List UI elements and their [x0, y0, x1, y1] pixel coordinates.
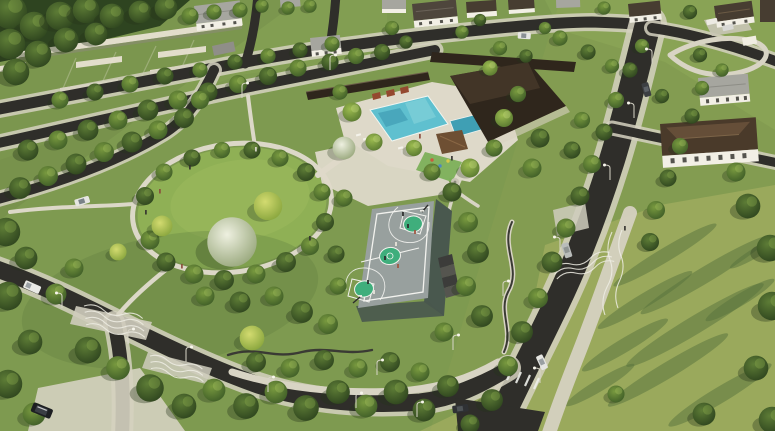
car-white — [518, 32, 531, 39]
pedestrian — [309, 236, 311, 241]
pedestrian — [419, 134, 421, 139]
pedestrian — [401, 150, 403, 155]
house — [508, 0, 535, 14]
pedestrian — [624, 226, 626, 231]
play-equipment — [446, 159, 449, 162]
aerial-community-render — [0, 0, 775, 431]
house — [760, 0, 775, 22]
render-canvas — [0, 0, 775, 431]
pedestrian — [159, 189, 161, 194]
pedestrian — [451, 156, 453, 161]
house — [628, 1, 662, 23]
pedestrian — [189, 165, 191, 170]
pedestrian — [145, 210, 147, 215]
house — [556, 0, 580, 8]
house — [412, 0, 458, 28]
pedestrian — [255, 147, 257, 152]
pedestrian — [181, 264, 183, 269]
play-equipment — [430, 158, 433, 161]
house — [382, 0, 406, 13]
